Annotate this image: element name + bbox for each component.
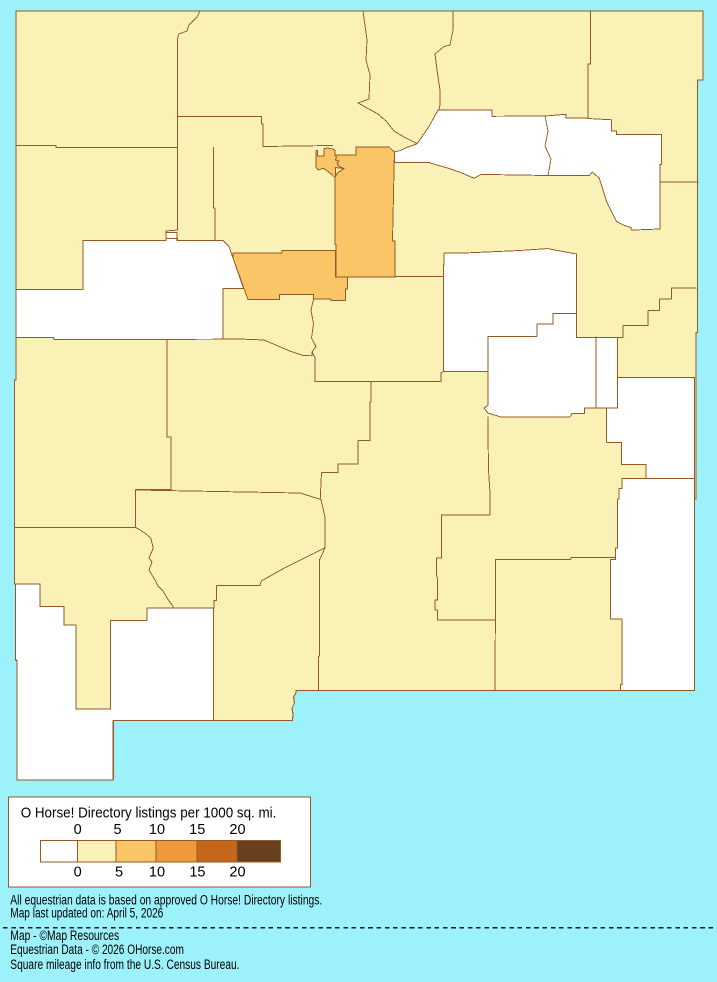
svg-text:5: 5: [113, 822, 121, 838]
svg-text:10: 10: [149, 822, 165, 838]
svg-text:Equestrian Data - © 2026 OHors: Equestrian Data - © 2026 OHorse.com: [10, 942, 184, 957]
svg-text:Square mileage info from the U: Square mileage info from the U.S. Census…: [10, 957, 239, 972]
svg-text:0: 0: [74, 822, 82, 838]
svg-text:20: 20: [229, 865, 245, 881]
svg-text:15: 15: [189, 822, 205, 838]
svg-text:10: 10: [149, 865, 165, 881]
svg-text:Map last updated on: April 5,: Map last updated on: April 5, 2026: [10, 906, 163, 921]
svg-text:O Horse! Directory listings pe: O Horse! Directory listings per 1000 sq.…: [21, 804, 277, 821]
svg-text:15: 15: [189, 865, 205, 881]
svg-text:20: 20: [229, 822, 245, 838]
svg-text:5: 5: [115, 865, 123, 881]
svg-text:Map - ©Map Resources: Map - ©Map Resources: [10, 928, 119, 943]
svg-text:0: 0: [74, 865, 82, 881]
